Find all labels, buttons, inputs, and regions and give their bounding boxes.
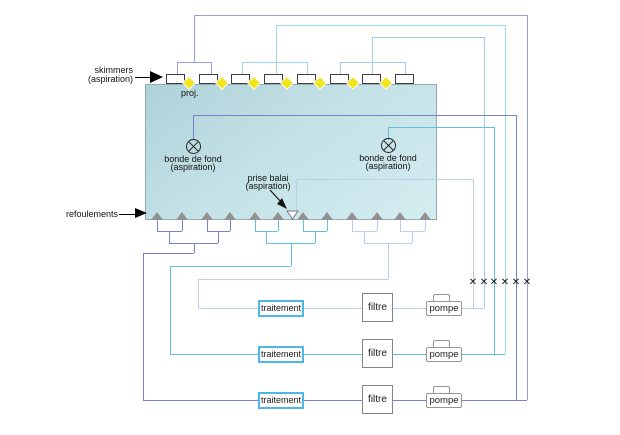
pipe-refoul3 <box>352 220 353 231</box>
pipe-skimmerB <box>242 62 307 63</box>
refoulement-nozzle-icon <box>419 212 431 220</box>
skimmers-label: skimmers (aspiration) <box>70 66 133 84</box>
pipe-bonde2 <box>494 127 495 354</box>
pipe-refoul2 <box>303 220 304 231</box>
pipe-bonde1 <box>193 115 194 140</box>
pipe-refoul3 <box>198 279 388 280</box>
pipe-skimmerA <box>211 62 212 74</box>
skimmer <box>395 74 414 84</box>
pipe-bonde2 <box>388 127 494 128</box>
pipe-skimmerC <box>372 37 484 38</box>
traitement-box: traitement <box>258 392 304 409</box>
pipe-row2 <box>393 354 426 355</box>
pipe-refoul1 <box>194 243 195 253</box>
pipe-refoul1 <box>218 231 219 243</box>
pipe-refoul1 <box>230 220 231 231</box>
pipe-skimmerC <box>484 37 485 308</box>
refoulement-nozzle-icon <box>176 212 188 220</box>
refoulement-nozzle-icon <box>224 212 236 220</box>
pipe-refoul2 <box>327 220 328 231</box>
pompe-box: pompe <box>426 347 462 362</box>
pipe-skimmerC <box>372 37 373 74</box>
pipe-skimmerB <box>276 25 277 74</box>
pipe-skimmerA <box>527 15 528 400</box>
pompe-box: pompe <box>426 301 462 316</box>
pompe-box: pompe <box>426 393 462 408</box>
pipe-row3 <box>462 400 527 401</box>
pipe-refoul1 <box>143 253 194 254</box>
filtre-box: filtre <box>362 293 393 322</box>
prise-balai-arrow-icon <box>268 188 292 212</box>
refoulement-nozzle-icon <box>272 212 284 220</box>
skimmers-label-line2: (aspiration) <box>88 74 133 84</box>
pipe-bonde1 <box>516 115 517 400</box>
skimmers-leader-line <box>135 77 150 78</box>
pipe-refoul2 <box>278 220 279 231</box>
pipe-refoul3 <box>198 308 258 309</box>
pipe-refoul2 <box>291 243 292 266</box>
bonde-fond-2-line2: (aspiration) <box>365 161 410 171</box>
refoulement-nozzle-icon <box>371 212 383 220</box>
pipe-skimmerB <box>505 25 506 354</box>
pipe-row2 <box>462 354 505 355</box>
pipe-refoul2 <box>266 231 267 243</box>
refoulements-arrow-icon <box>135 208 147 218</box>
pipe-skimmerC <box>405 62 406 74</box>
proj-label: proj. <box>181 89 199 98</box>
refoulement-nozzle-icon <box>346 212 358 220</box>
pipe-refoul2 <box>170 266 291 267</box>
refoulement-nozzle-icon <box>394 212 406 220</box>
pipe-refoul1 <box>207 220 208 231</box>
pipe-row1 <box>393 308 426 309</box>
pipe-skimmerB <box>276 25 505 26</box>
valve-icon: ✕ <box>521 277 533 289</box>
bonde-de-fond-icon <box>381 138 396 153</box>
skimmers-arrow-icon <box>150 71 163 83</box>
pipe-refoul3 <box>400 220 401 231</box>
pipe-refoul2 <box>170 266 171 354</box>
pipe-row3 <box>393 400 426 401</box>
pipe-row3 <box>304 400 362 401</box>
pipe-refoul3 <box>377 220 378 231</box>
filtre-box: filtre <box>362 385 393 414</box>
refoulements-label: refoulements <box>60 210 118 219</box>
pipe-refoul1 <box>157 220 158 231</box>
pipe-skimmerA <box>177 62 178 74</box>
pipe-refoul3 <box>198 279 199 308</box>
bonde-fond-1-line2: (aspiration) <box>170 162 215 172</box>
bonde-de-fond-icon <box>186 139 201 154</box>
pipe-skimmerA <box>194 15 527 16</box>
refoulement-nozzle-icon <box>201 212 213 220</box>
pipe-skimmerA <box>194 15 195 62</box>
skimmer <box>362 74 381 84</box>
pipe-refoul3 <box>412 231 413 243</box>
pipe-refoul2 <box>255 220 256 231</box>
pipe-skimmerB <box>307 62 308 74</box>
pipe-refoul3 <box>388 243 389 279</box>
pipe-row1 <box>304 308 362 309</box>
pipe-refoul3 <box>425 220 426 231</box>
pipe-skimmerB <box>242 62 243 74</box>
pipe-refoul3 <box>364 231 365 243</box>
refoulement-nozzle-icon <box>249 212 261 220</box>
pipe-skimmerA <box>177 62 211 63</box>
pipe-refoul2 <box>170 354 258 355</box>
refoulement-nozzle-icon <box>151 212 163 220</box>
pipe-refoul1 <box>169 231 170 243</box>
pipe-refoul1 <box>143 400 258 401</box>
refoulement-nozzle-icon <box>321 212 333 220</box>
pipe-bonde1 <box>193 115 516 116</box>
bonde-fond-2-label: bonde de fond (aspiration) <box>340 154 436 170</box>
bonde-fond-1-label: bonde de fond (aspiration) <box>145 155 241 171</box>
pipe-refoul1 <box>182 220 183 231</box>
pipe-refoul2 <box>315 231 316 243</box>
traitement-box: traitement <box>258 346 304 363</box>
pipe-row2 <box>304 354 362 355</box>
pipe-skimmerC <box>340 62 341 74</box>
pipe-row1 <box>462 308 484 309</box>
pool-hydraulics-diagram: ✕ ✕ ✕ ✕ ✕ ✕ skimmers (aspiration) proj. … <box>0 0 620 435</box>
pipe-prise-balai <box>296 179 473 180</box>
refoulements-leader-line <box>119 214 135 215</box>
pipe-refoul1 <box>143 253 144 400</box>
filtre-box: filtre <box>362 339 393 368</box>
traitement-box: traitement <box>258 300 304 317</box>
